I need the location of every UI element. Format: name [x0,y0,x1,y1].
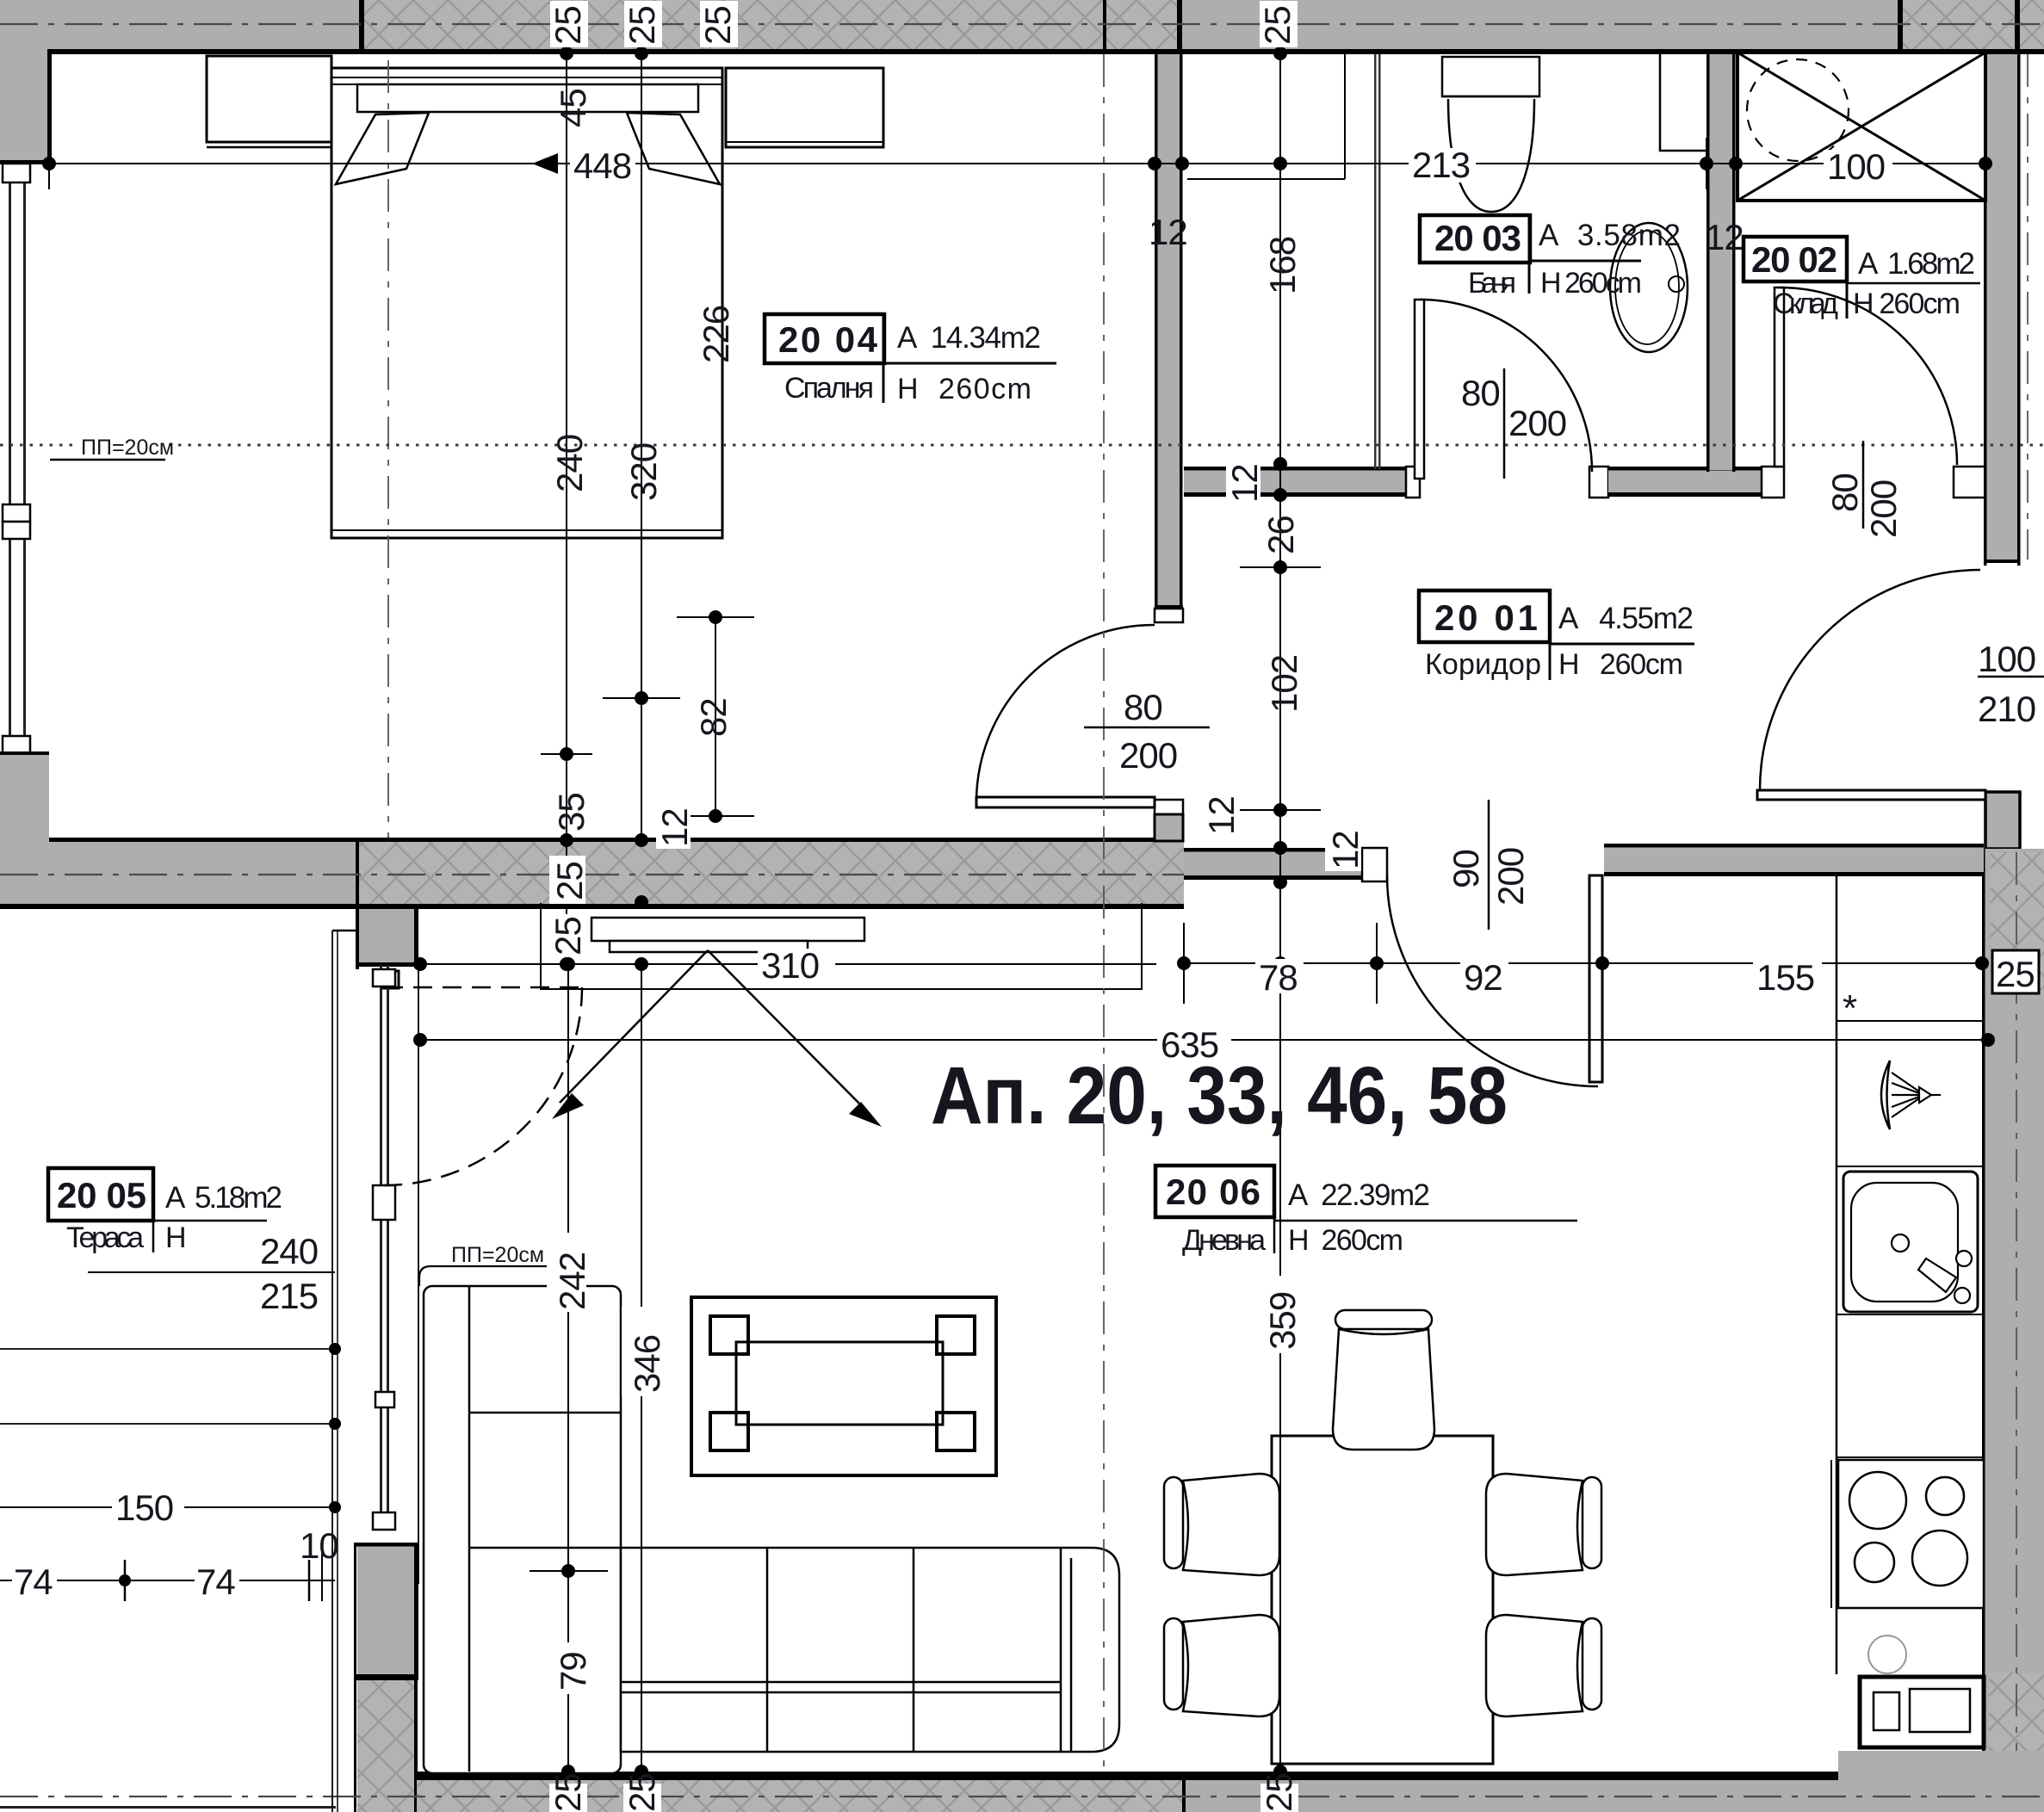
svg-text:Тераса: Тераса [66,1221,144,1254]
svg-text:150: 150 [115,1487,173,1528]
svg-text:Склад: Склад [1773,288,1838,320]
svg-text:12: 12 [1224,464,1265,503]
svg-text:25: 25 [548,917,588,955]
svg-text:200: 200 [1863,480,1904,538]
svg-text:80: 80 [1461,373,1500,413]
svg-text:240: 240 [260,1231,318,1271]
svg-text:320: 320 [623,443,664,501]
svg-text:78: 78 [1259,957,1298,998]
svg-text:ПП=20см: ПП=20см [81,436,174,460]
svg-text:20 05: 20 05 [57,1175,146,1215]
svg-text:213: 213 [1412,145,1470,185]
svg-text:20 01: 20 01 [1434,597,1538,638]
svg-text:80: 80 [1824,473,1865,512]
svg-text:20 02: 20 02 [1751,239,1837,280]
svg-text:Баня: Баня [1468,267,1516,300]
svg-text:H 260cm: H 260cm [1288,1224,1403,1257]
svg-text:25: 25 [548,1773,588,1812]
svg-text:H: H [165,1221,187,1254]
svg-text:A 5.18m2: A 5.18m2 [165,1181,282,1215]
svg-text:12: 12 [1325,831,1366,869]
svg-text:100: 100 [1978,639,2035,679]
svg-text:25: 25 [1996,954,2035,994]
svg-text:Дневна: Дневна [1182,1224,1266,1257]
svg-text:102: 102 [1264,655,1304,713]
svg-text:226: 226 [696,306,736,363]
svg-text:26: 26 [1260,516,1301,554]
svg-text:Коридор: Коридор [1425,648,1541,681]
svg-text:100: 100 [1827,146,1885,187]
svg-text:H 260cm: H 260cm [1540,267,1642,300]
svg-text:12: 12 [1705,217,1744,257]
svg-text:A 1.68m2: A 1.68m2 [1858,247,1975,281]
svg-text:25: 25 [697,6,738,45]
svg-text:240: 240 [549,435,590,492]
svg-text:Ап. 20, 33, 46, 58: Ап. 20, 33, 46, 58 [931,1050,1508,1141]
svg-text:Спалня: Спалня [784,372,874,405]
svg-text:A 22.39m2: A 22.39m2 [1288,1178,1430,1212]
svg-text:*: * [1843,987,1857,1030]
svg-text:25: 25 [1259,1773,1299,1812]
svg-text:359: 359 [1262,1292,1303,1350]
svg-text:20 06: 20 06 [1166,1172,1260,1212]
svg-text:10: 10 [300,1525,338,1566]
svg-text:200: 200 [1119,735,1177,776]
svg-text:92: 92 [1464,957,1502,998]
svg-text:45: 45 [553,89,593,127]
svg-text:20 03: 20 03 [1434,218,1521,258]
svg-text:155: 155 [1756,957,1814,998]
svg-text:H 260cm: H 260cm [1558,648,1683,681]
svg-text:35: 35 [551,793,592,832]
svg-text:74: 74 [196,1562,235,1602]
svg-text:79: 79 [553,1652,593,1691]
svg-text:25: 25 [622,1773,662,1812]
svg-text:200: 200 [1490,848,1531,906]
svg-text:12: 12 [1149,212,1187,252]
svg-text:80: 80 [1124,687,1162,727]
svg-text:H 260cm: H 260cm [897,373,1031,405]
svg-text:346: 346 [627,1335,667,1393]
svg-text:12: 12 [1201,796,1242,835]
svg-text:25: 25 [1257,6,1298,45]
svg-text:90: 90 [1446,850,1486,888]
svg-text:168: 168 [1262,237,1303,294]
svg-text:H 260cm: H 260cm [1853,288,1960,320]
svg-text:215: 215 [260,1276,318,1316]
svg-text:200: 200 [1508,403,1566,443]
svg-text:448: 448 [573,145,631,186]
svg-text:25: 25 [622,6,662,45]
svg-text:A 4.55m2: A 4.55m2 [1558,602,1694,635]
svg-text:25: 25 [548,6,588,45]
svg-text:A 14.34m2: A 14.34m2 [897,321,1041,355]
svg-text:310: 310 [761,945,819,986]
svg-text:25: 25 [549,862,590,900]
svg-text:A 3.58m2: A 3.58m2 [1539,219,1681,252]
svg-text:242: 242 [552,1252,592,1310]
svg-text:74: 74 [14,1562,53,1602]
svg-text:82: 82 [693,698,734,737]
svg-text:12: 12 [654,808,695,847]
svg-text:210: 210 [1978,689,2035,729]
svg-text:ПП=20см: ПП=20см [451,1243,544,1267]
svg-text:20 04: 20 04 [778,319,878,360]
